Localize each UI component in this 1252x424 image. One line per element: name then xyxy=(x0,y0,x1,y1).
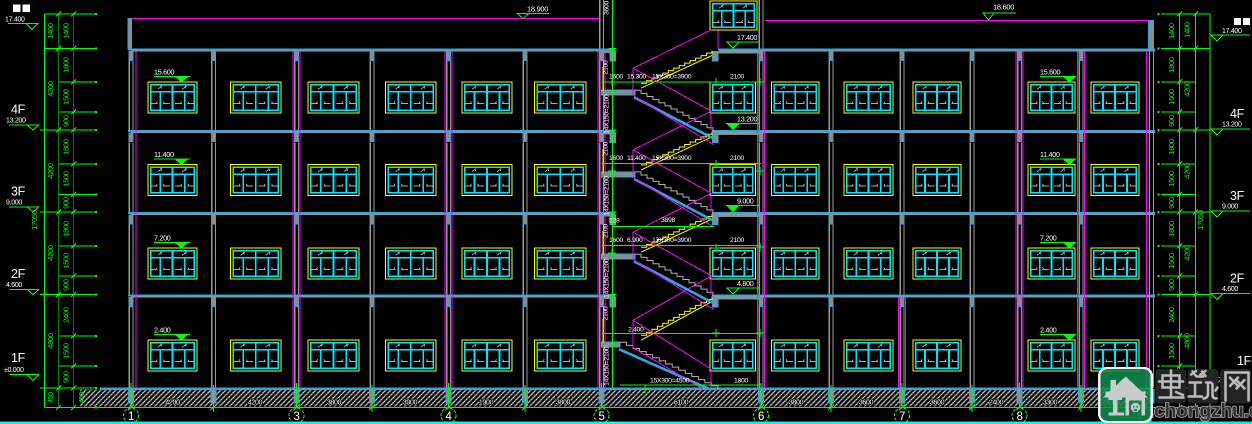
svg-text:1800: 1800 xyxy=(62,221,71,237)
svg-text:7: 7 xyxy=(899,411,905,423)
svg-text:3F: 3F xyxy=(1230,189,1245,203)
svg-text:4.800: 4.800 xyxy=(737,279,754,288)
svg-text:450: 450 xyxy=(79,392,86,403)
svg-text:3800: 3800 xyxy=(327,400,342,407)
svg-text:3300: 3300 xyxy=(1043,400,1058,407)
svg-text:9.000: 9.000 xyxy=(737,197,754,206)
svg-text:1800: 1800 xyxy=(734,378,748,385)
svg-text:18.900: 18.900 xyxy=(527,5,548,14)
svg-text:1600: 1600 xyxy=(609,74,623,81)
svg-text:15X300=3900: 15X300=3900 xyxy=(652,155,692,162)
svg-text:6.900: 6.900 xyxy=(627,237,643,244)
svg-text:1800: 1800 xyxy=(62,57,71,73)
svg-text:4200: 4200 xyxy=(46,163,55,179)
svg-text:3898: 3898 xyxy=(661,217,675,224)
svg-text:14X150=2100: 14X150=2100 xyxy=(604,258,611,298)
svg-text:17050: 17050 xyxy=(30,210,39,229)
svg-text:3600: 3600 xyxy=(859,400,874,407)
svg-text:4.600: 4.600 xyxy=(6,282,22,289)
svg-text:1800: 1800 xyxy=(62,139,71,155)
svg-text:11.400: 11.400 xyxy=(154,150,174,159)
svg-text:9.000: 9.000 xyxy=(1222,204,1238,211)
svg-text:1400: 1400 xyxy=(62,23,71,39)
svg-text:2.400: 2.400 xyxy=(1040,326,1057,335)
svg-text:3600: 3600 xyxy=(604,1,611,15)
svg-text:13.200: 13.200 xyxy=(737,114,757,123)
svg-text:6: 6 xyxy=(758,411,764,423)
svg-text:2400: 2400 xyxy=(62,307,71,323)
svg-text:3800: 3800 xyxy=(789,400,804,407)
svg-text:528: 528 xyxy=(609,218,620,225)
svg-text:1400: 1400 xyxy=(1167,23,1176,39)
svg-text:4800: 4800 xyxy=(46,333,55,349)
svg-text:4200: 4200 xyxy=(46,81,55,97)
svg-text:1500: 1500 xyxy=(1167,253,1176,269)
svg-text:900: 900 xyxy=(62,279,71,291)
svg-text:4200: 4200 xyxy=(248,400,263,407)
svg-text:1F: 1F xyxy=(1237,354,1252,368)
svg-text:900: 900 xyxy=(62,115,71,127)
svg-text:17.400: 17.400 xyxy=(5,17,25,24)
svg-text:2100: 2100 xyxy=(603,141,610,155)
svg-text:2100: 2100 xyxy=(603,224,610,238)
svg-text:900: 900 xyxy=(62,197,71,209)
svg-text:15X300=3900: 15X300=3900 xyxy=(652,74,692,81)
svg-text:1500: 1500 xyxy=(62,253,71,269)
svg-text:8: 8 xyxy=(1016,411,1022,423)
svg-text:1800: 1800 xyxy=(1167,139,1176,155)
svg-text:1600: 1600 xyxy=(609,155,623,162)
svg-text:2100: 2100 xyxy=(730,237,744,244)
svg-text:13.200: 13.200 xyxy=(1222,122,1242,129)
svg-text:2.400: 2.400 xyxy=(628,327,644,334)
svg-text:1400: 1400 xyxy=(46,23,55,39)
svg-text:chongzhu.cn: chongzhu.cn xyxy=(1154,400,1252,422)
svg-text:900: 900 xyxy=(1167,279,1176,291)
svg-text:15X300=4500: 15X300=4500 xyxy=(650,378,690,385)
svg-text:3800: 3800 xyxy=(556,400,571,407)
svg-text:1500: 1500 xyxy=(62,343,71,359)
svg-text:900: 900 xyxy=(1167,115,1176,127)
svg-text:15.300: 15.300 xyxy=(627,74,647,81)
svg-text:7.200: 7.200 xyxy=(154,234,171,243)
svg-text:7.200: 7.200 xyxy=(1040,234,1057,243)
svg-text:15.600: 15.600 xyxy=(154,68,174,77)
svg-text:5: 5 xyxy=(598,411,604,423)
svg-text:2.400: 2.400 xyxy=(154,326,171,335)
svg-text:4: 4 xyxy=(445,411,452,423)
svg-text:3600: 3600 xyxy=(930,400,945,407)
svg-text:4800: 4800 xyxy=(1183,333,1192,349)
svg-text:3900: 3900 xyxy=(403,400,418,407)
svg-text:2400: 2400 xyxy=(1167,307,1176,323)
svg-text:1500: 1500 xyxy=(1167,171,1176,187)
svg-text:±0.000: ±0.000 xyxy=(4,367,24,374)
svg-text:4200: 4200 xyxy=(1183,245,1192,261)
svg-text:2100: 2100 xyxy=(603,60,610,74)
svg-text:1500: 1500 xyxy=(62,89,71,105)
svg-text:2100: 2100 xyxy=(603,306,610,320)
svg-text:14X150=2100: 14X150=2100 xyxy=(604,94,611,134)
svg-text:4200: 4200 xyxy=(46,245,55,261)
svg-text:450: 450 xyxy=(48,392,55,403)
svg-text:2F: 2F xyxy=(1230,272,1245,286)
svg-text:1400: 1400 xyxy=(1183,22,1192,38)
svg-text:4F: 4F xyxy=(11,103,26,117)
svg-text:1500: 1500 xyxy=(62,171,71,187)
svg-text:14X150=2100: 14X150=2100 xyxy=(604,176,611,216)
svg-text:4F: 4F xyxy=(1230,107,1245,121)
svg-text:2F: 2F xyxy=(11,267,26,281)
svg-text:17050: 17050 xyxy=(1196,210,1205,229)
svg-text:2100: 2100 xyxy=(730,74,744,81)
svg-text:17.400: 17.400 xyxy=(1222,28,1242,35)
svg-text:11.400: 11.400 xyxy=(1040,150,1060,159)
svg-text:6100: 6100 xyxy=(674,400,689,407)
svg-text:1: 1 xyxy=(128,411,134,423)
svg-text:900: 900 xyxy=(1167,197,1176,209)
svg-text:1900: 1900 xyxy=(479,400,494,407)
svg-text:2100: 2100 xyxy=(730,155,744,162)
svg-text:4200: 4200 xyxy=(1183,81,1192,97)
svg-text:4200: 4200 xyxy=(165,400,180,407)
svg-text:14X150=2100: 14X150=2100 xyxy=(604,346,611,386)
svg-text:2400: 2400 xyxy=(989,400,1004,407)
svg-text:3: 3 xyxy=(293,411,299,423)
svg-text:1500: 1500 xyxy=(1167,89,1176,105)
svg-text:1600: 1600 xyxy=(609,237,623,244)
svg-text:15.600: 15.600 xyxy=(1040,68,1060,77)
svg-text:13.200: 13.200 xyxy=(6,118,26,125)
svg-text:4200: 4200 xyxy=(1183,163,1192,179)
svg-text:9.000: 9.000 xyxy=(6,200,22,207)
svg-text:17.400: 17.400 xyxy=(737,33,757,42)
svg-text:1F: 1F xyxy=(11,351,26,365)
svg-text:900: 900 xyxy=(62,371,71,383)
svg-text:11.400: 11.400 xyxy=(627,155,646,162)
svg-text:1500: 1500 xyxy=(1167,343,1176,359)
svg-text:13X300=3900: 13X300=3900 xyxy=(652,237,692,244)
svg-text:1800: 1800 xyxy=(1167,57,1176,73)
svg-text:3F: 3F xyxy=(11,185,26,199)
svg-text:18.600: 18.600 xyxy=(993,3,1014,12)
svg-text:1800: 1800 xyxy=(1167,221,1176,237)
svg-text:4.600: 4.600 xyxy=(1222,286,1238,293)
